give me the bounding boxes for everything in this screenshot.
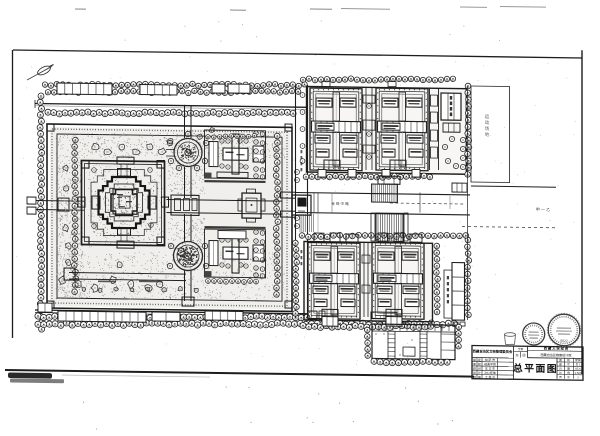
svg-text:金 珠 中 路: 金 珠 中 路 <box>331 201 349 206</box>
svg-text:总 1: 总 1 <box>576 362 581 366</box>
svg-text:别: 别 <box>567 358 570 362</box>
svg-text:总平面图: 总平面图 <box>513 361 558 375</box>
svg-text:对: 对 <box>478 366 481 371</box>
svg-text:场: 场 <box>485 125 490 132</box>
svg-text:85.6: 85.6 <box>575 367 581 371</box>
svg-text:图: 图 <box>559 362 562 366</box>
svg-text:审: 审 <box>473 357 476 362</box>
svg-text:甲 一 乙: 甲 一 乙 <box>536 206 550 212</box>
svg-text:例: 例 <box>567 371 570 375</box>
svg-text:运: 运 <box>485 113 490 120</box>
svg-text:计: 计 <box>478 370 481 375</box>
svg-text:核: 核 <box>478 361 481 366</box>
svg-text:页: 页 <box>559 375 562 379</box>
svg-text:固: 固 <box>523 353 526 357</box>
svg-text:期: 期 <box>567 367 570 371</box>
svg-text:比: 比 <box>559 371 562 375</box>
svg-text:1:500: 1:500 <box>575 371 582 375</box>
svg-text:加: 加 <box>516 352 519 357</box>
svg-text:西藏自治区勘察设计院: 西藏自治区勘察设计院 <box>541 352 572 357</box>
svg-text:图: 图 <box>559 358 562 362</box>
svg-text:土 登 次: 土 登 次 <box>485 374 495 379</box>
svg-text:号: 号 <box>567 362 570 366</box>
svg-text:图: 图 <box>478 375 481 379</box>
svg-text:定: 定 <box>478 357 481 362</box>
svg-text:地: 地 <box>485 131 490 137</box>
svg-text:设: 设 <box>473 370 476 375</box>
svg-text:日: 日 <box>559 368 562 371</box>
svg-text:建施: 建施 <box>575 358 581 362</box>
svg-text:校: 校 <box>473 366 476 371</box>
svg-text:审: 审 <box>473 361 476 366</box>
svg-text:8822: 8822 <box>560 339 568 343</box>
svg-text:西藏自治区文物管理委员会: 西藏自治区文物管理委员会 <box>473 348 513 354</box>
svg-text:制: 制 <box>473 374 476 379</box>
svg-text:全套: 全套 <box>518 347 524 351</box>
svg-text:动: 动 <box>485 119 490 126</box>
svg-text:次: 次 <box>567 375 570 379</box>
